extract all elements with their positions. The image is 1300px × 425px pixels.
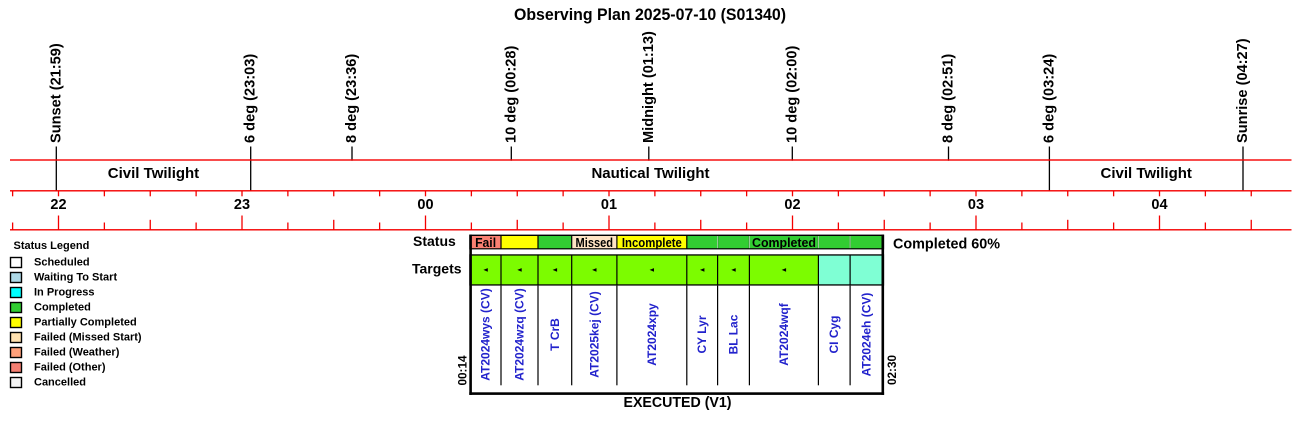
- svg-text:Nautical Twilight: Nautical Twilight: [591, 165, 709, 182]
- svg-text:04: 04: [1151, 197, 1167, 213]
- svg-text:AT2024eh (CV): AT2024eh (CV): [860, 293, 874, 377]
- svg-text:Completed: Completed: [752, 236, 816, 250]
- svg-text:Sunrise (04:27): Sunrise (04:27): [1235, 38, 1251, 143]
- svg-text:Failed (Missed Start): Failed (Missed Start): [34, 332, 142, 344]
- svg-text:Civil Twilight: Civil Twilight: [108, 165, 199, 182]
- svg-text:AT2024xpy: AT2024xpy: [645, 303, 659, 366]
- svg-text:Status Legend: Status Legend: [14, 240, 90, 252]
- svg-text:10 deg (00:28): 10 deg (00:28): [503, 46, 519, 143]
- svg-text:CI Cyg: CI Cyg: [827, 315, 841, 353]
- svg-text:Cancelled: Cancelled: [34, 377, 86, 389]
- svg-text:Fail: Fail: [475, 236, 496, 250]
- svg-text:Incomplete: Incomplete: [622, 236, 682, 250]
- svg-text:00: 00: [417, 197, 433, 213]
- svg-text:Midnight (01:13): Midnight (01:13): [641, 31, 657, 143]
- svg-text:Sunset (21:59): Sunset (21:59): [48, 43, 64, 143]
- svg-text:Status: Status: [413, 233, 456, 249]
- svg-text:8 deg (02:51): 8 deg (02:51): [941, 54, 957, 143]
- svg-text:00:14: 00:14: [456, 355, 470, 385]
- svg-text:Completed 60%: Completed 60%: [893, 235, 1000, 252]
- svg-text:Civil Twilight: Civil Twilight: [1101, 165, 1192, 182]
- svg-text:AT2024wqf: AT2024wqf: [777, 302, 791, 365]
- svg-text:Missed: Missed: [576, 236, 614, 250]
- svg-text:10 deg (02:00): 10 deg (02:00): [784, 46, 800, 143]
- svg-text:Observing Plan 2025-07-10 (S01: Observing Plan 2025-07-10 (S01340): [514, 5, 786, 24]
- svg-text:Failed (Other): Failed (Other): [34, 362, 106, 374]
- svg-text:02: 02: [784, 197, 800, 213]
- svg-text:In Progress: In Progress: [34, 287, 95, 299]
- svg-text:BL Lac: BL Lac: [727, 314, 741, 354]
- svg-text:03: 03: [968, 197, 984, 213]
- svg-text:22: 22: [50, 197, 66, 213]
- svg-text:AT2024wzq (CV): AT2024wzq (CV): [513, 288, 527, 380]
- svg-text:01: 01: [601, 197, 617, 213]
- svg-text:AT2024wys (CV): AT2024wys (CV): [479, 288, 493, 380]
- svg-text:23: 23: [234, 197, 250, 213]
- svg-text:6 deg (23:03): 6 deg (23:03): [243, 54, 259, 143]
- svg-text:02:30: 02:30: [885, 355, 899, 385]
- svg-text:Waiting To Start: Waiting To Start: [34, 272, 117, 284]
- svg-text:CY Lyr: CY Lyr: [695, 315, 709, 353]
- svg-text:6 deg (03:24): 6 deg (03:24): [1041, 54, 1057, 143]
- svg-text:8 deg (23:36): 8 deg (23:36): [344, 54, 360, 143]
- svg-text:Completed: Completed: [34, 302, 91, 314]
- svg-text:T CrB: T CrB: [548, 318, 562, 351]
- svg-text:Partially Completed: Partially Completed: [34, 317, 137, 329]
- svg-text:AT2025kej (CV): AT2025kej (CV): [587, 291, 601, 377]
- svg-text:EXECUTED (V1): EXECUTED (V1): [624, 394, 732, 411]
- svg-text:Scheduled: Scheduled: [34, 257, 90, 269]
- svg-text:Targets: Targets: [412, 261, 462, 277]
- svg-text:Failed (Weather): Failed (Weather): [34, 347, 120, 359]
